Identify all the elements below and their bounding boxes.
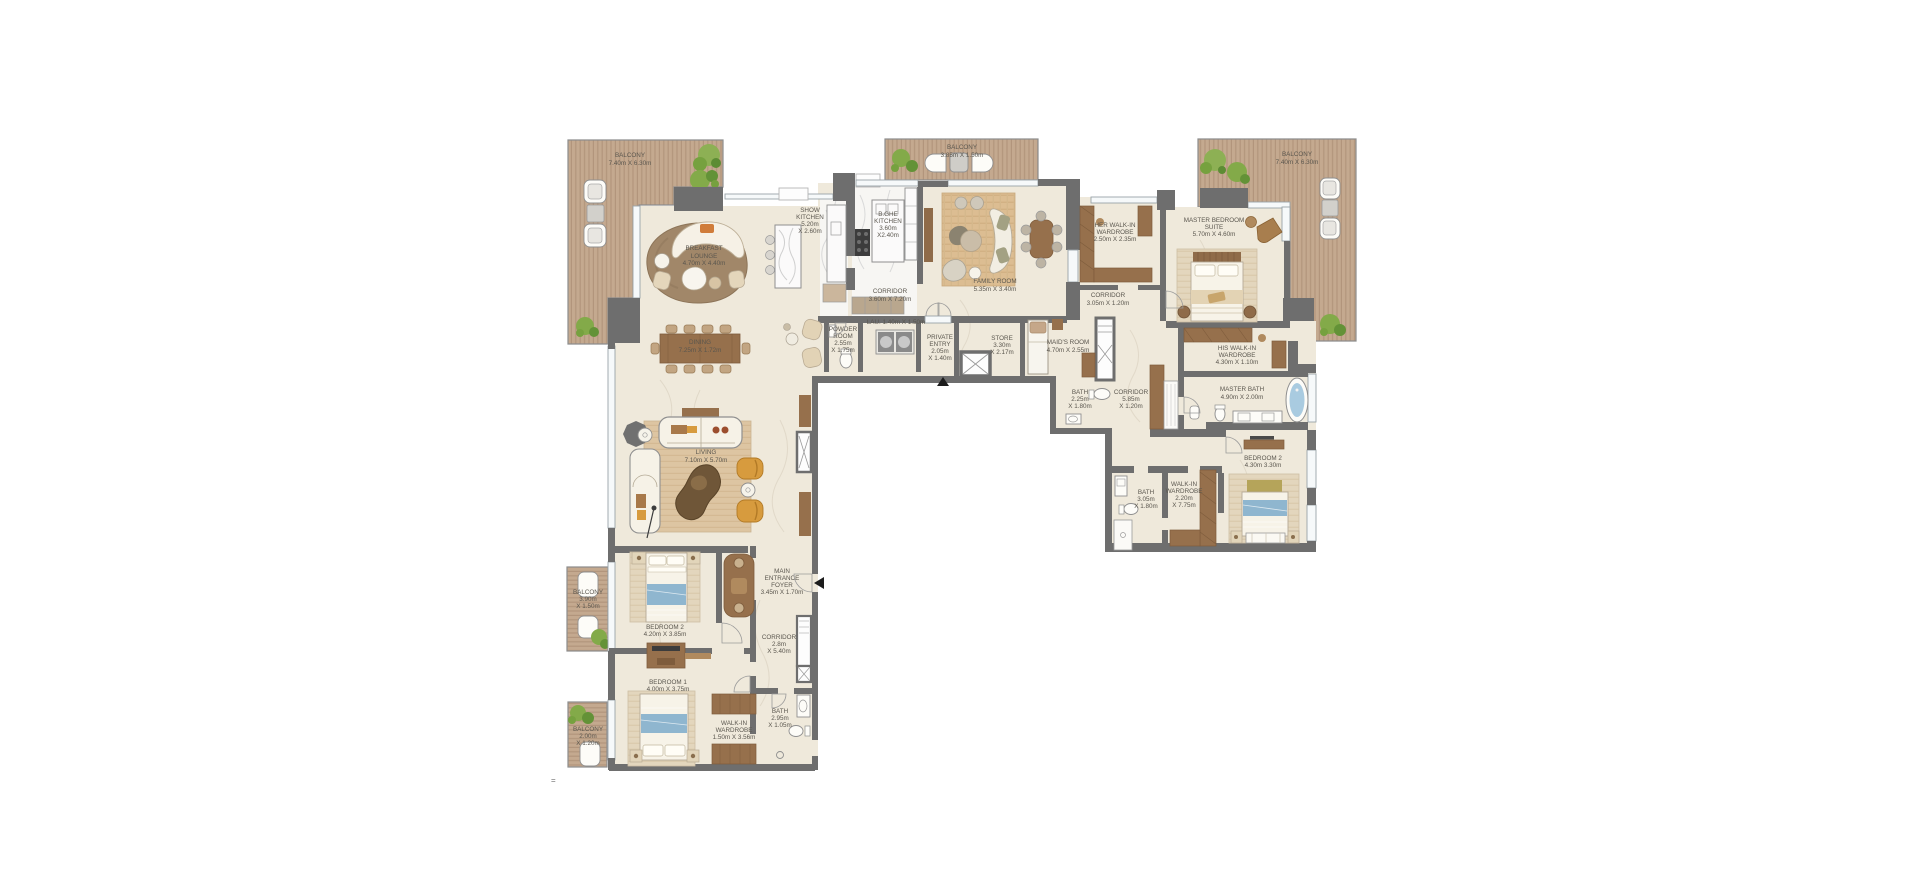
svg-text:BALCONY: BALCONY [947,144,978,151]
svg-text:CORRIDOR: CORRIDOR [873,288,908,295]
svg-text:B.GHE: B.GHE [878,211,898,218]
svg-text:MAID'S ROOM: MAID'S ROOM [1047,339,1089,346]
svg-text:7.40m X 6.30m: 7.40m X 6.30m [609,160,652,167]
svg-text:WARDROBE: WARDROBE [1097,229,1134,236]
svg-text:X 1.20m: X 1.20m [1119,403,1142,410]
svg-text:BATH: BATH [1072,389,1089,396]
svg-text:FOYER: FOYER [771,582,793,589]
svg-text:X 1.80m: X 1.80m [1134,503,1157,510]
svg-text:X 5.40m: X 5.40m [767,648,790,655]
svg-text:FAMILY ROOM: FAMILY ROOM [973,278,1016,285]
svg-text:4.30m X 1.10m: 4.30m X 1.10m [1216,359,1259,366]
svg-text:=: = [551,776,556,785]
svg-text:BALCONY: BALCONY [1282,151,1313,158]
svg-text:4.20m X 3.85m: 4.20m X 3.85m [644,631,687,638]
svg-text:WALK-IN: WALK-IN [1171,481,1197,488]
svg-text:5.20m: 5.20m [801,221,819,228]
svg-text:X 1.05m: X 1.05m [768,722,791,729]
svg-text:BEDROOM 2: BEDROOM 2 [646,624,684,631]
svg-text:5.85m: 5.85m [1122,396,1140,403]
svg-text:SHOW: SHOW [800,207,820,214]
svg-text:WARDROBE: WARDROBE [1166,488,1203,495]
svg-text:MASTER BATH: MASTER BATH [1220,386,1265,393]
svg-text:4.70m X 2.55m: 4.70m X 2.55m [1047,347,1090,354]
svg-text:WALK-IN: WALK-IN [721,720,747,727]
svg-text:5.70m X 4.60m: 5.70m X 4.60m [1193,231,1236,238]
svg-text:X 1.50m: X 1.50m [576,603,599,610]
svg-text:ENTRY: ENTRY [929,341,951,348]
svg-text:2.50m X 2.35m: 2.50m X 2.35m [1094,236,1137,243]
svg-text:2.95m: 2.95m [771,715,789,722]
svg-text:X2.40m: X2.40m [877,232,899,239]
svg-text:3.05m X 1.20m: 3.05m X 1.20m [1087,300,1130,307]
svg-text:3.60m: 3.60m [879,225,897,232]
svg-text:HIS WALK-IN: HIS WALK-IN [1218,345,1257,352]
svg-text:WARDROBE: WARDROBE [716,727,753,734]
svg-text:CORRIDOR: CORRIDOR [1091,292,1126,299]
svg-text:X 2.17m: X 2.17m [990,349,1013,356]
svg-text:KITCHEN: KITCHEN [796,214,824,221]
svg-text:KITCHEN: KITCHEN [874,218,902,225]
svg-text:BALCONY: BALCONY [573,726,604,733]
svg-text:2.20m: 2.20m [1175,495,1193,502]
svg-text:BATH: BATH [772,708,789,715]
svg-text:3.45m X 1.70m: 3.45m X 1.70m [761,589,804,596]
svg-text:7.10m X 5.70m: 7.10m X 5.70m [685,457,728,464]
svg-text:2.25m: 2.25m [1071,396,1089,403]
svg-text:2.55m: 2.55m [834,340,852,347]
svg-text:MASTER BEDROOM: MASTER BEDROOM [1184,217,1245,224]
svg-text:X 7.75m: X 7.75m [1172,502,1195,509]
svg-text:2.8m: 2.8m [772,641,786,648]
svg-text:BEDROOM 1: BEDROOM 1 [649,679,687,686]
svg-text:LIVING: LIVING [696,449,717,456]
svg-text:LAU. 1.40m X 1.50m: LAU. 1.40m X 1.50m [867,319,925,326]
svg-text:4.30m 3.30m: 4.30m 3.30m [1245,462,1282,469]
svg-text:3.05m: 3.05m [1137,496,1155,503]
svg-text:BATH: BATH [1138,489,1155,496]
svg-text:BALCONY: BALCONY [573,589,604,596]
svg-text:7.40m X 6.30m: 7.40m X 6.30m [1276,159,1319,166]
svg-text:PRIVATE: PRIVATE [927,334,953,341]
svg-text:STORE: STORE [991,335,1013,342]
svg-text:MAIN: MAIN [774,568,790,575]
svg-text:X 1.40m: X 1.40m [928,355,951,362]
svg-text:SUITE: SUITE [1205,224,1224,231]
svg-text:3.90m: 3.90m [579,596,597,603]
svg-text:WARDROBE: WARDROBE [1219,352,1256,359]
svg-text:7.25m X 1.72m: 7.25m X 1.72m [679,347,722,354]
svg-text:HER WALK-IN: HER WALK-IN [1094,222,1136,229]
svg-text:X 1.20m: X 1.20m [576,740,599,747]
svg-text:3.30m: 3.30m [993,342,1011,349]
svg-text:3.60m X 7.20m: 3.60m X 7.20m [869,296,912,303]
svg-text:4.00m X 3.75m: 4.00m X 3.75m [647,686,690,693]
svg-text:1.50m X 3.56m: 1.50m X 3.56m [713,734,756,741]
svg-text:BEDROOM 2: BEDROOM 2 [1244,455,1282,462]
svg-text:POWDER: POWDER [829,326,858,333]
svg-text:4.90m X 2.00m: 4.90m X 2.00m [1221,394,1264,401]
svg-text:X 1.75m: X 1.75m [831,347,854,354]
svg-text:4.70m X 4.40m: 4.70m X 4.40m [683,260,726,267]
svg-text:2.05m: 2.05m [931,348,949,355]
svg-text:X 2.60m: X 2.60m [798,228,821,235]
svg-text:LOUNGE: LOUNGE [691,253,718,260]
svg-text:CORRIDOR: CORRIDOR [762,634,797,641]
svg-text:DINING: DINING [689,339,711,346]
svg-text:5.35m X 3.40m: 5.35m X 3.40m [974,286,1017,293]
svg-text:3.85m X 1.50m: 3.85m X 1.50m [941,152,984,159]
svg-text:CORRIDOR: CORRIDOR [1114,389,1149,396]
svg-text:2.00m: 2.00m [579,733,597,740]
svg-text:BALCONY: BALCONY [615,152,646,159]
svg-text:BREAKFAST: BREAKFAST [685,245,722,252]
svg-text:X 1.80m: X 1.80m [1068,403,1091,410]
